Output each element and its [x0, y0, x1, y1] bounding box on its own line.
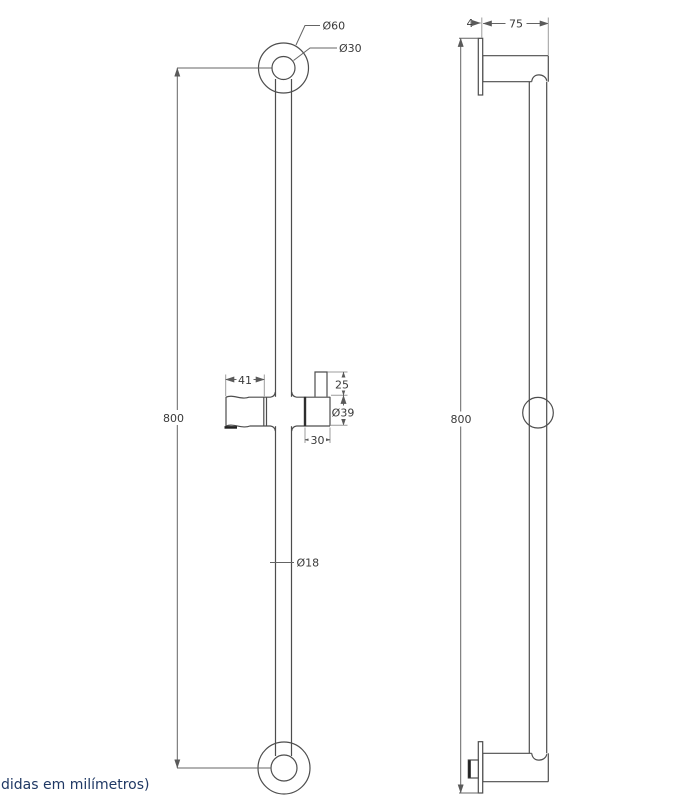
dim-label-flange-inner: Ø30 — [339, 42, 362, 55]
dim-label-side-height: 800 — [451, 413, 472, 426]
dim-label-flange-outer: Ø60 — [323, 20, 346, 33]
dimension-30: 30 — [305, 428, 330, 448]
dim-label-knob-width: 30 — [311, 434, 325, 447]
dim-label-wall-offset: 75 — [509, 18, 523, 31]
slide-bar-tube-side — [529, 81, 546, 755]
dimension-41: 41 — [226, 374, 265, 397]
drawing-page: 800 41 25 Ø39 — [0, 0, 685, 800]
bottom-mount-side — [468, 742, 548, 793]
tube-fillet-top-left — [271, 392, 276, 397]
tube-fillet-bottom-right — [292, 426, 297, 431]
clamp-lever — [315, 372, 327, 397]
dimension-800-side: 800 — [449, 38, 479, 793]
top-wall-plate — [478, 38, 482, 95]
dimension-25: 25 — [328, 372, 351, 395]
dim-label-front-height: 800 — [163, 412, 184, 425]
leader-line-d60 — [296, 26, 320, 46]
dim-label-plate-thickness: 4 — [467, 17, 474, 30]
bottom-wall-plate — [478, 742, 482, 793]
dim-label-knob-diameter: Ø39 — [332, 407, 355, 420]
dimension-75: 75 — [483, 18, 548, 56]
bottom-flange-inner-circle — [271, 755, 297, 781]
top-mount-side — [478, 38, 548, 95]
dim-label-clamp-height: 25 — [335, 379, 349, 392]
dim-label-bar-diameter: Ø18 — [297, 557, 320, 570]
side-view: 800 4 75 — [449, 17, 554, 793]
front-view: 800 41 25 Ø39 — [161, 20, 362, 795]
tube-fillet-bottom-left — [271, 426, 276, 431]
tube-fillet-top-right — [292, 392, 297, 397]
top-flange-inner-circle — [272, 57, 295, 80]
dimension-d39: Ø39 — [331, 395, 356, 425]
slider-knob-side — [523, 397, 554, 428]
dim-label-arm-length: 41 — [238, 374, 252, 387]
dimension-4: 4 — [467, 17, 482, 38]
technical-drawing: 800 41 25 Ø39 — [0, 0, 685, 800]
units-note: didas em milímetros) — [1, 777, 150, 793]
